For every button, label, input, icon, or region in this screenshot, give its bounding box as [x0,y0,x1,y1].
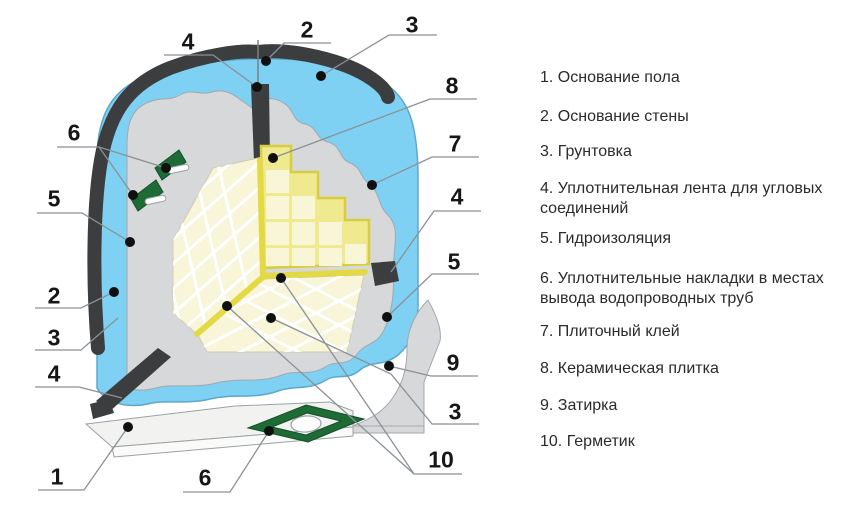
callout-label-2-top: 2 [301,17,314,44]
callout-label-7: 7 [449,131,462,158]
callout-label-2-left: 2 [48,283,61,310]
legend-item: 5. Гидроизоляция [540,229,832,249]
legend-item: 3. Грунтовка [540,142,832,162]
callout-label-4-left: 4 [48,361,61,388]
callout-label-3-left: 3 [48,325,61,352]
callout-label-6-bottom: 6 [199,465,212,492]
callout-label-10: 10 [428,447,454,474]
legend-item: 8. Керамическая плитка [540,359,832,379]
legend-item: 1. Основание пола [540,68,832,88]
legend-item: 4. Уплотнительная лента для угловых соед… [540,179,832,219]
legend-item: 9. Затирка [540,396,832,416]
callout-label-9: 9 [447,350,460,377]
callout-label-5-left: 5 [48,186,61,213]
callout-label-8: 8 [446,73,459,100]
legend-item: 10. Герметик [540,432,832,452]
callout-label-3-right: 3 [449,399,462,426]
legend-item: 6. Уплотнительные накладки в местах выво… [540,269,832,309]
callout-label-5-right: 5 [448,249,461,276]
legend-item: 2. Основание стены [540,107,832,127]
callout-label-3-top: 3 [406,12,419,39]
waterproofing-diagram: 4 2 3 6 5 2 3 4 1 6 8 7 4 5 9 3 10 1. Ос… [0,0,850,510]
callout-label-4-top: 4 [182,29,195,56]
legend-item: 7. Плиточный клей [540,322,832,342]
callout-label-6-left: 6 [68,120,81,147]
callout-label-4-right: 4 [451,184,464,211]
callout-label-1: 1 [51,464,64,491]
